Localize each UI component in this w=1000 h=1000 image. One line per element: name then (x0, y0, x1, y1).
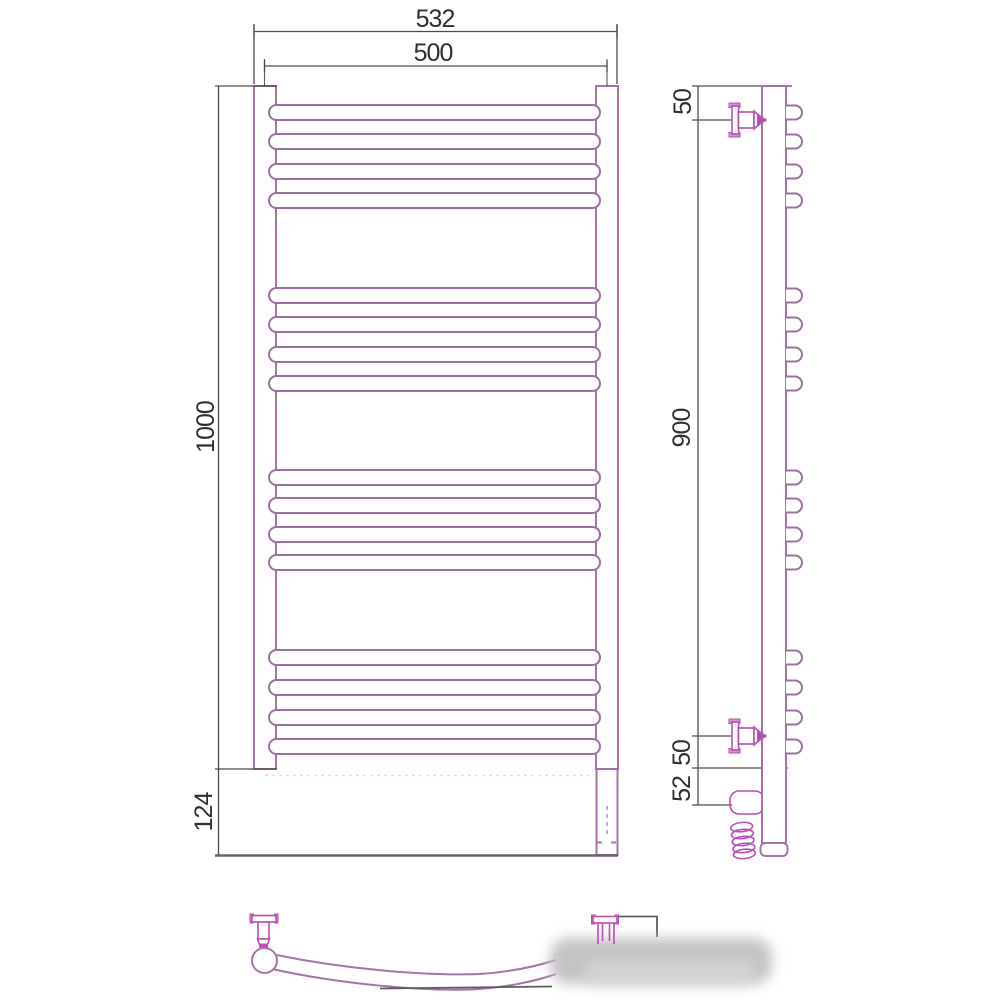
dim-label-lower-offset: 50 (668, 740, 696, 766)
towel-bar (269, 347, 600, 362)
towel-bar (269, 710, 600, 725)
dim-label-lower-height: 124 (190, 792, 218, 832)
towel-bar (269, 680, 600, 695)
dim-label-top-offset: 50 (669, 89, 697, 115)
side-post-bottom-cap (761, 843, 788, 856)
front-bars (269, 105, 600, 754)
dim-label-bracket-span: 900 (668, 409, 696, 448)
towel-bar (269, 134, 600, 149)
front-view (215, 86, 618, 856)
heating-element-housing (730, 791, 764, 814)
bar-end-loop (786, 651, 802, 665)
towel-bar (269, 555, 600, 570)
side-post (762, 86, 786, 843)
dim-label-total-height: 1000 (192, 401, 220, 453)
top-wall-bracket (729, 103, 767, 137)
dim-label-outer-width: 532 (416, 5, 455, 33)
bar-end-loop (786, 377, 802, 391)
watermark-blob-soft (585, 960, 755, 986)
bar-end-loop (786, 194, 802, 208)
front-right-rail (596, 86, 618, 769)
front-left-rail (254, 86, 276, 769)
bar-end-loop (786, 528, 802, 542)
bar-end-loop (786, 740, 802, 754)
bar-end-loop (786, 135, 802, 149)
bar-end-loop (786, 106, 802, 120)
technical-drawing: 532 500 1000 124 50 900 50 52 (0, 0, 1000, 1000)
bar-end-loop (786, 318, 802, 332)
dim-label-axis-width: 500 (414, 39, 453, 67)
plan-left-bracket (250, 914, 278, 949)
side-bar-loops (786, 106, 802, 754)
bar-end-loop (786, 499, 802, 513)
towel-bar (269, 376, 600, 391)
bar-end-loop (786, 681, 802, 695)
towel-bar (269, 288, 600, 303)
dim-label-element-offset: 52 (668, 776, 696, 802)
towel-bar (269, 739, 600, 754)
bar-end-loop (786, 471, 802, 485)
towel-bar (269, 498, 600, 513)
bottom-wall-bracket (729, 719, 767, 753)
bar-end-loop (786, 289, 802, 303)
plan-view (250, 914, 772, 990)
towel-bar (269, 105, 600, 120)
towel-bar (269, 650, 600, 665)
towel-bar (269, 164, 600, 179)
bar-end-loop (786, 165, 802, 179)
towel-bar (269, 193, 600, 208)
towel-bar (269, 317, 600, 332)
drawing-page: 532 500 1000 124 50 900 50 52 (0, 0, 1000, 1000)
plan-post-circle (252, 948, 277, 973)
bar-end-loop (786, 711, 802, 725)
side-view: 50 900 50 52 (668, 86, 802, 860)
curved-bar-front-edge (277, 955, 557, 974)
towel-bar (269, 470, 600, 485)
plan-corner-line (614, 917, 657, 938)
power-cord-coil (730, 821, 756, 859)
bar-end-loop (786, 556, 802, 570)
bar-end-loop (786, 348, 802, 362)
towel-bar (269, 527, 600, 542)
plan-wall-line (380, 987, 552, 989)
